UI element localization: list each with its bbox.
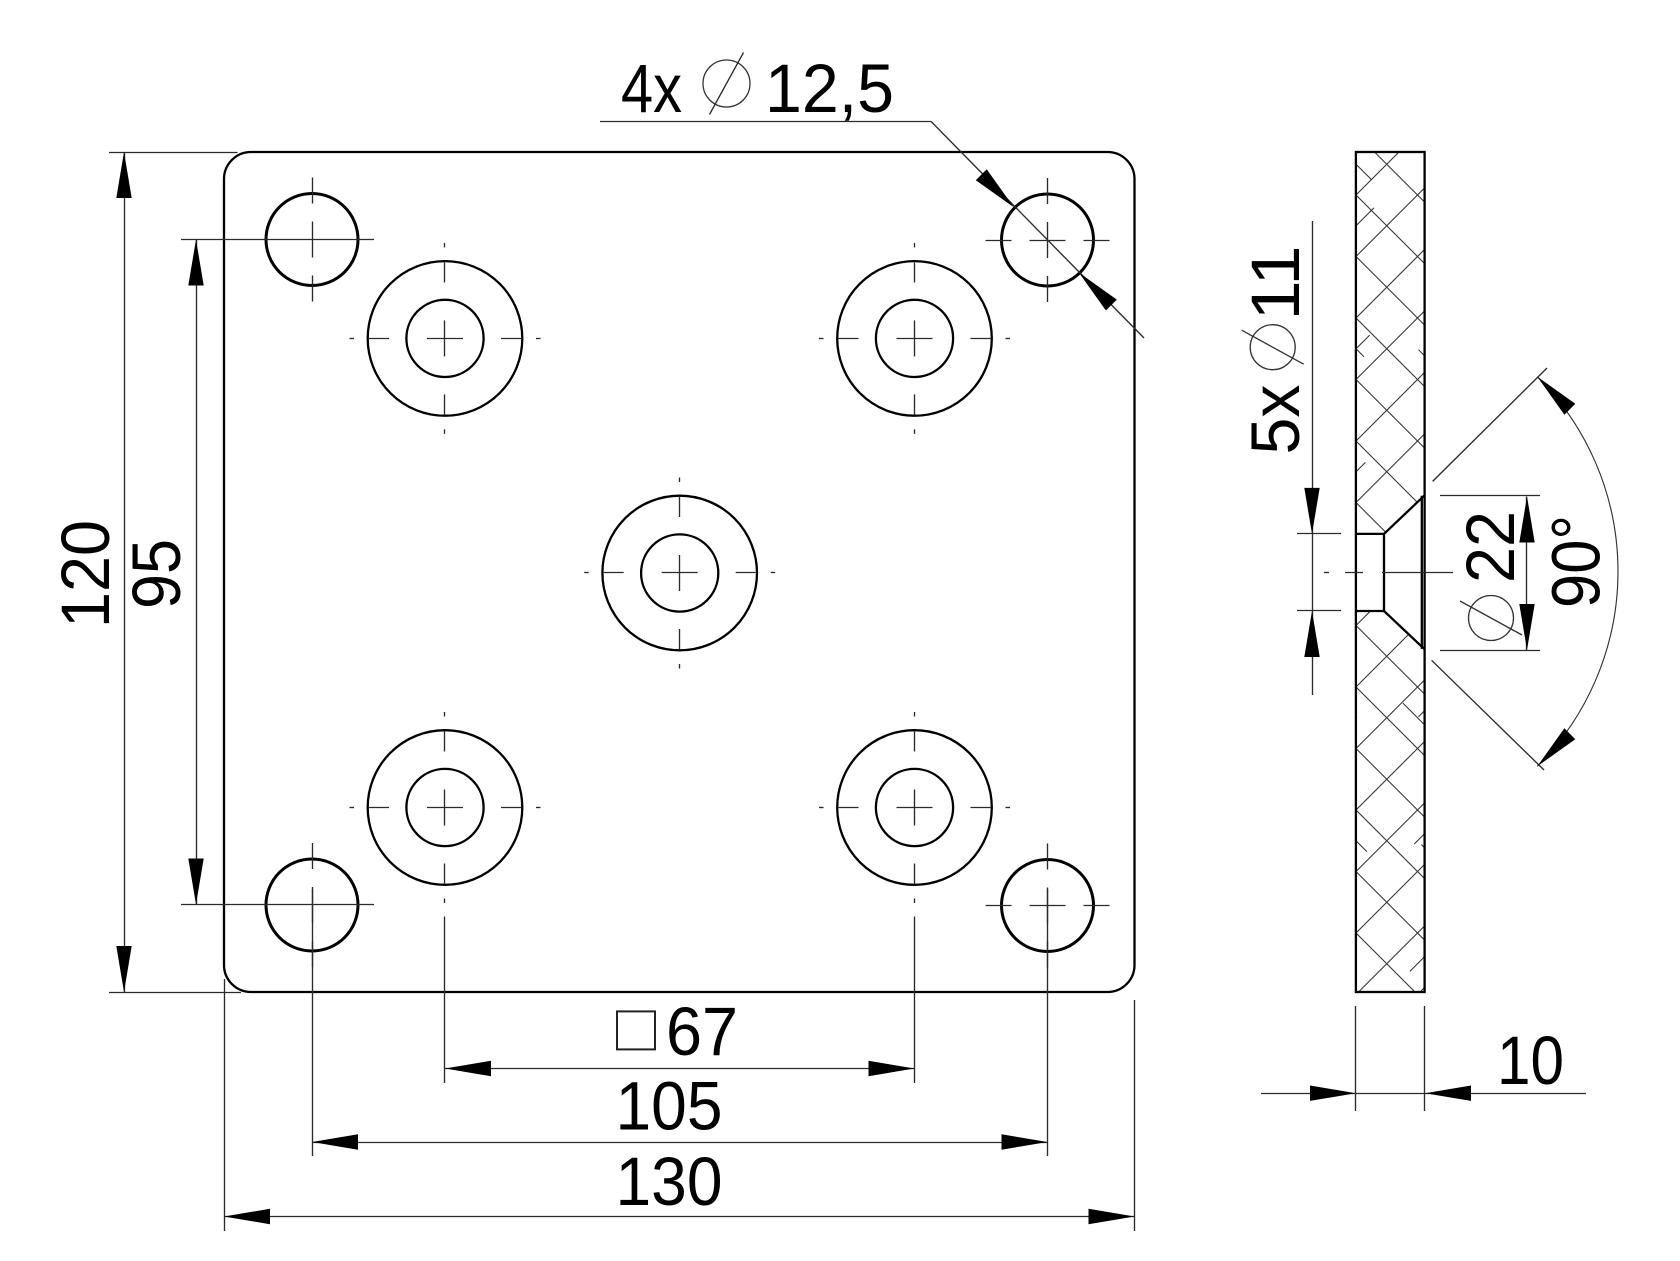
svg-text:95: 95 bbox=[118, 539, 195, 609]
svg-text:10: 10 bbox=[1497, 1022, 1564, 1099]
svg-text:67: 67 bbox=[666, 993, 738, 1070]
svg-text:105: 105 bbox=[616, 1067, 723, 1144]
svg-text:90°: 90° bbox=[1537, 515, 1614, 608]
svg-text:12,5: 12,5 bbox=[765, 50, 894, 127]
svg-text:5x: 5x bbox=[1237, 385, 1314, 455]
svg-text:120: 120 bbox=[47, 520, 124, 628]
svg-text:130: 130 bbox=[616, 1143, 723, 1220]
svg-text:22: 22 bbox=[1452, 511, 1529, 583]
svg-text:4x: 4x bbox=[621, 50, 682, 127]
svg-text:11: 11 bbox=[1237, 246, 1314, 321]
